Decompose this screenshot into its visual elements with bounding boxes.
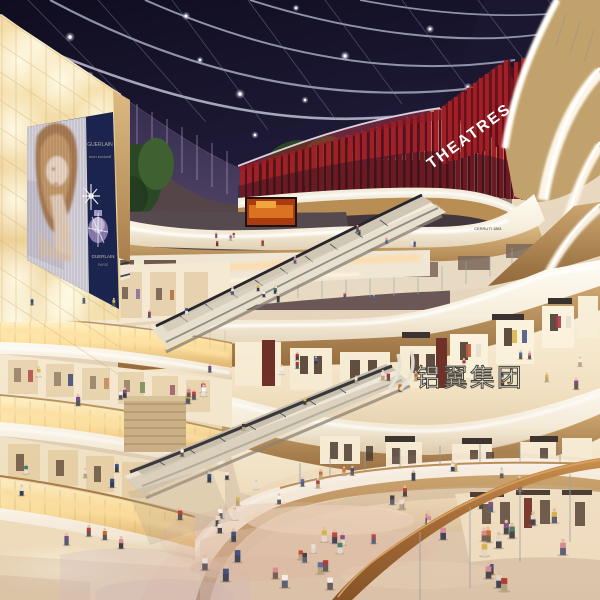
svg-text:CERRUTI 1881: CERRUTI 1881 xyxy=(474,226,503,231)
svg-text:铝翼集团: 铝翼集团 xyxy=(416,364,524,392)
